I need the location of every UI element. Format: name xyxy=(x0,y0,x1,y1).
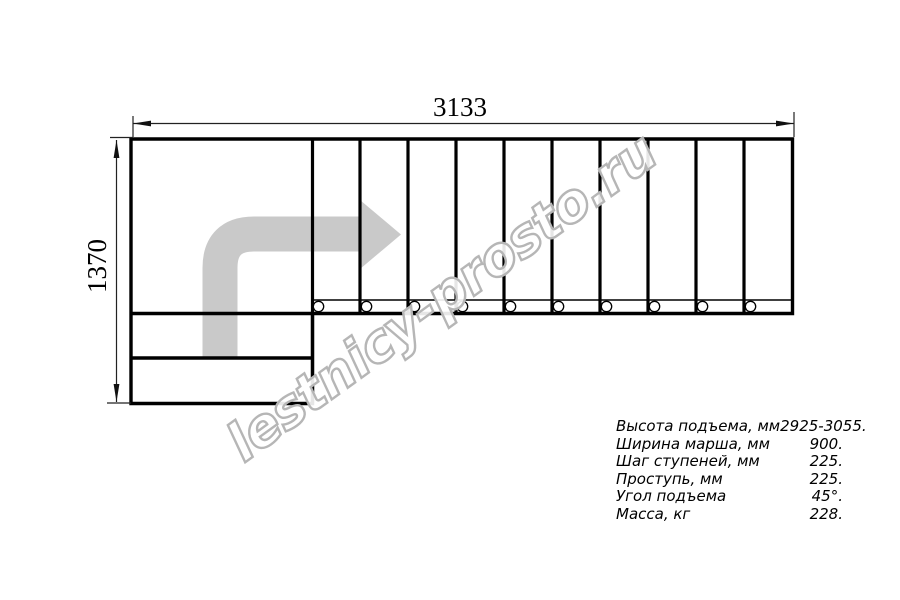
spec-value: 45°. xyxy=(812,488,843,506)
width-dimension-label: 3133 xyxy=(433,92,487,122)
spec-value: 225. xyxy=(810,471,843,489)
spec-value: 225. xyxy=(810,453,843,471)
dimension-arrowhead-right xyxy=(776,121,794,127)
dimension-arrowhead-left xyxy=(133,121,151,127)
spec-label: Масса, кг xyxy=(616,506,690,524)
dimension-arrowhead-bottom xyxy=(114,384,120,402)
spec-label: Шаг ступеней, мм xyxy=(616,453,760,471)
spec-row: Высота подъема, мм 2925-3055. xyxy=(616,418,843,436)
height-dimension-label: 1370 xyxy=(82,239,112,293)
spec-label: Ширина марша, мм xyxy=(616,436,770,454)
spec-label: Угол подъема xyxy=(616,488,726,506)
baluster-circle xyxy=(313,301,323,311)
spec-label: Проступь, мм xyxy=(616,471,723,489)
dimension-arrowhead-top xyxy=(114,140,120,158)
spec-value: 228. xyxy=(810,506,843,524)
spec-label: Высота подъема, мм xyxy=(616,418,780,436)
spec-row: Угол подъема 45°. xyxy=(616,488,843,506)
baluster-circle xyxy=(505,301,515,311)
spec-row: Проступь, мм 225. xyxy=(616,471,843,489)
baluster-circle xyxy=(553,301,563,311)
spec-value: 2925-3055. xyxy=(780,418,867,436)
height-dimension: 1370 xyxy=(82,138,133,404)
width-dimension: 3133 xyxy=(133,92,794,137)
direction-arrow-head xyxy=(360,200,401,269)
spec-row: Шаг ступеней, мм 225. xyxy=(616,453,843,471)
baluster-circle xyxy=(697,301,707,311)
baluster-circle xyxy=(361,301,371,311)
spec-row: Масса, кг 228. xyxy=(616,506,843,524)
spec-row: Ширина марша, мм 900. xyxy=(616,436,843,454)
staircase-drawing-page: 3133 1370 lestnicy-prosto.ru Высота подъ… xyxy=(0,0,900,600)
baluster-circle xyxy=(601,301,611,311)
spec-value: 900. xyxy=(810,436,843,454)
spec-table: Высота подъема, мм 2925-3055. Ширина мар… xyxy=(616,418,843,524)
baluster-circle xyxy=(649,301,659,311)
baluster-circle xyxy=(745,301,755,311)
